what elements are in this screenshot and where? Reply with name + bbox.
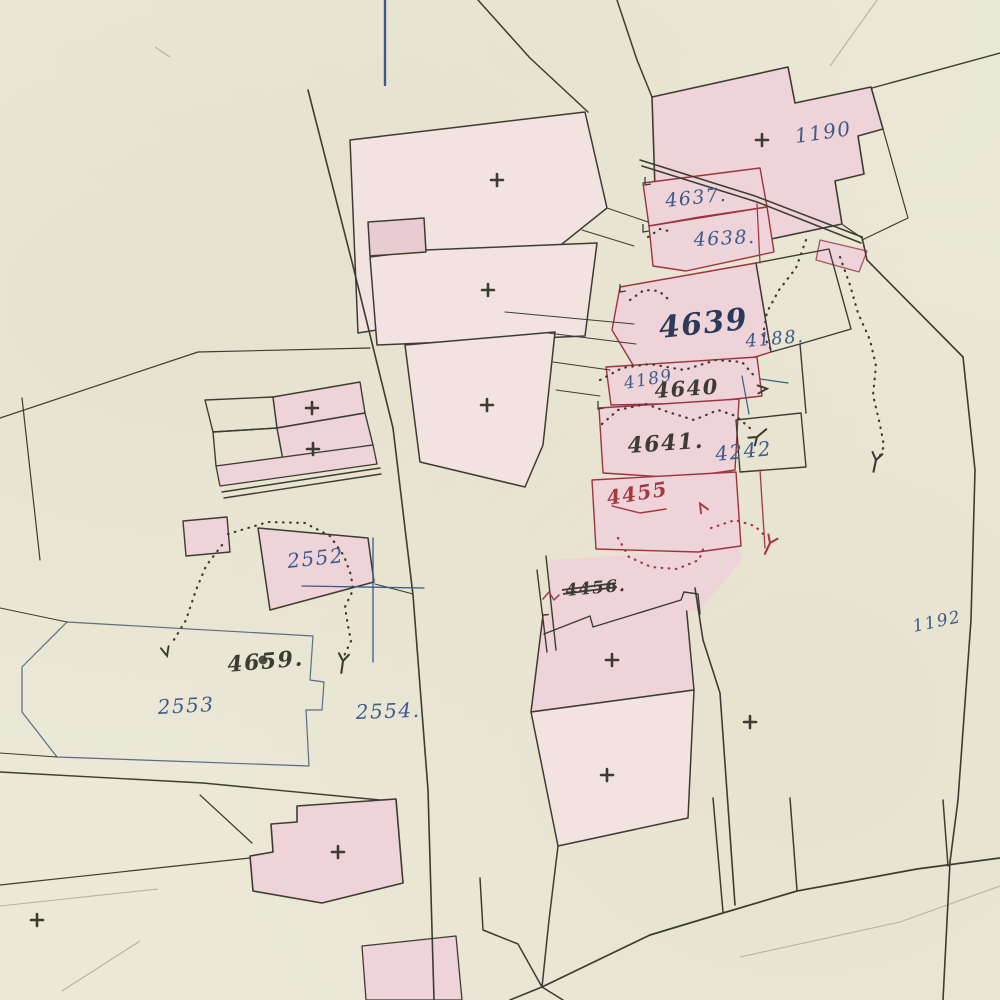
dark-boundary-line [556,390,600,396]
pencil-line [830,0,877,66]
cadastral-map: 11904637.4638.46394188.418946404641.4242… [0,0,1000,1000]
block-strip-2-annex [368,218,426,256]
tick-mark [643,224,649,232]
block-strip-3 [405,332,555,487]
parcel-label-4640: 4640 [654,374,720,403]
pencil-line [0,889,158,906]
dark-boundary-line [607,208,648,222]
band-cell-left-1 [205,397,277,432]
dark-boundary-line [790,798,797,890]
dark-boundary-line [862,129,908,240]
red-boundary-line [760,470,765,548]
parcel-label-4638: 4638. [692,226,756,251]
dark-boundary-line [695,588,735,905]
dark-boundary-line [872,53,1000,88]
dark-boundary-line [478,0,588,112]
parcel-label-2554: 2554. [354,698,421,724]
small-square-house [183,517,230,556]
dark-boundary-line [800,344,806,413]
house-bottom-left [250,799,403,903]
survey-arrow-icon [336,653,349,673]
dark-boundary-line [0,772,380,800]
pink-patch-bottom [362,936,462,1000]
dark-boundary-line [943,862,950,1000]
dark-boundary-line [0,858,250,885]
small-pink-quad-right [816,240,867,272]
blue-boundary-line [760,379,788,383]
dark-boundary-line [617,0,652,97]
small-arrow-icon [161,646,171,657]
building-cross-mark [31,914,43,926]
dark-boundary-line [22,398,40,560]
dark-boundary-line [510,987,542,1000]
dark-boundary-line [0,753,57,757]
parcel-label-4242: 4242 [713,436,773,466]
block-strip-2 [370,243,597,345]
dotted-boundary [840,257,884,458]
dark-boundary-line [0,608,67,622]
dark-boundary-line [862,237,963,357]
building-cross-mark [744,716,756,728]
parcel-label-4188: 4188. [744,326,806,352]
dark-boundary-line [553,362,610,370]
survey-arrow-icon [760,535,777,556]
dark-boundary-line [200,795,252,843]
dark-boundary-line [713,798,723,912]
survey-arrow-icon [869,452,883,473]
dark-boundary-line [542,935,650,987]
parcel-label-1192: 1192 [911,607,963,637]
pencil-line [62,941,140,991]
dark-boundary-line [375,584,413,594]
dark-boundary-line [542,846,558,987]
house-bottom-mid-2 [531,690,694,846]
dark-boundary-line [480,878,542,987]
ink-blot [259,656,268,665]
parcel-label-2553: 2553 [156,692,215,719]
pencil-line [155,47,170,57]
cadastral-map-sheet: 11904637.4638.46394188.418946404641.4242… [0,0,1000,1000]
parcel-label-4641: 4641. [627,428,705,459]
dark-boundary-line [943,800,948,866]
dark-boundary-line [542,987,563,1000]
